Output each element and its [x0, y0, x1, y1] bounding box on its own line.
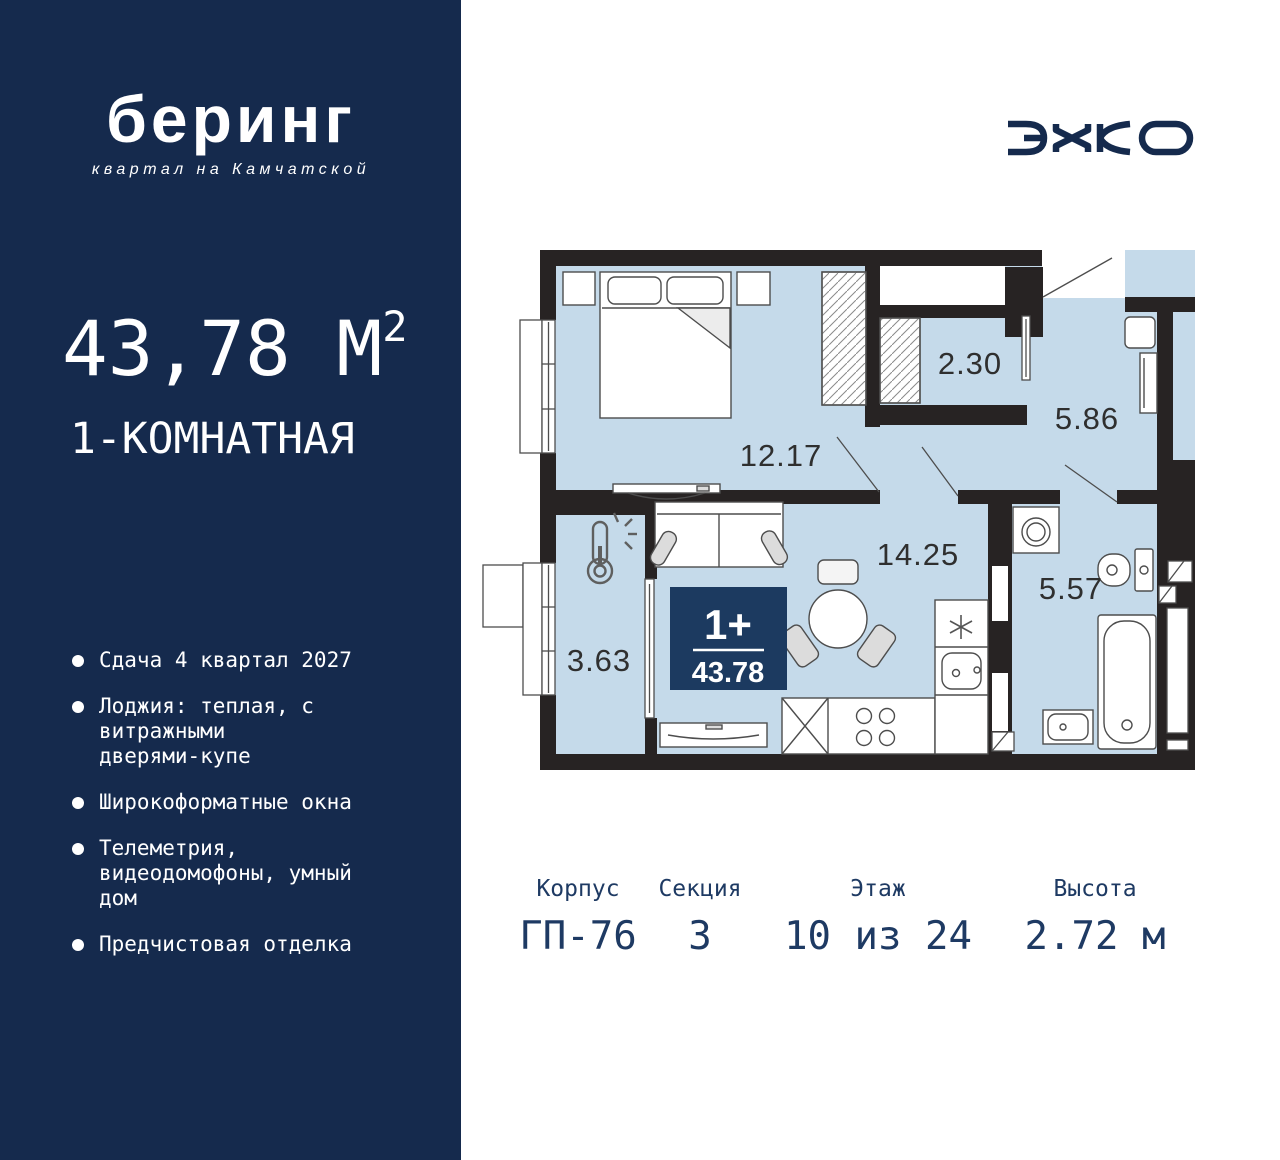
- bedroom-window: [520, 320, 542, 453]
- bullet-dot-icon: [72, 655, 84, 667]
- room-label-bedroom: 12.17: [740, 438, 823, 473]
- area-superscript: 2: [382, 302, 407, 351]
- feature-text: Телеметрия, видеодомофоны, умный дом: [99, 836, 352, 911]
- developer-logo: ЭНКО: [1000, 118, 1200, 158]
- info-label: Высота: [965, 876, 1225, 902]
- list-item: Телеметрия, видеодомофоны, умный дом: [72, 836, 442, 911]
- badge-type: 1+: [704, 601, 752, 648]
- list-item: Сдача 4 квартал 2027: [72, 648, 442, 673]
- room-label-living: 14.25: [877, 537, 960, 572]
- stove-burner: [857, 709, 872, 724]
- area-value: 43,78: [62, 304, 291, 393]
- nightstand: [563, 272, 595, 305]
- nightstand: [737, 272, 770, 305]
- apartment-badge: 1+ 43.78: [670, 587, 787, 690]
- feature-text: Предчистовая отделка: [99, 932, 352, 957]
- room-label-hallway: 5.86: [1055, 401, 1119, 436]
- stove-burner: [880, 709, 895, 724]
- exterior-ledge: [483, 565, 523, 627]
- apartment-area: 43,78 М2: [62, 302, 408, 393]
- stove-burner: [880, 731, 895, 746]
- list-item: Предчистовая отделка: [72, 932, 442, 957]
- floor-plan: 12.17 2.30 5.86 14.25 5.57 3.63 1+ 43.78: [478, 246, 1205, 775]
- area-unit: М: [291, 304, 383, 393]
- room-label-wardrobe: 2.30: [938, 346, 1002, 381]
- wall-niche: [878, 266, 1005, 305]
- dining-table: [809, 590, 867, 648]
- apartment-type: 1-КОМНАТНАЯ: [70, 414, 355, 464]
- info-value: 2.72 м: [965, 914, 1225, 959]
- list-item: Лоджия: теплая, с витражными дверями-куп…: [72, 694, 442, 769]
- bullet-dot-icon: [72, 797, 84, 809]
- bullet-dot-icon: [72, 843, 84, 855]
- feature-text: Сдача 4 квартал 2027: [99, 648, 352, 673]
- info-column-vysota: Высота 2.72 м: [965, 876, 1225, 959]
- stove-burner: [857, 731, 872, 746]
- brand-logo: беринг квартал на Камчатской: [50, 86, 412, 179]
- bullet-dot-icon: [72, 701, 84, 713]
- badge-area: 43.78: [692, 657, 765, 689]
- bullet-dot-icon: [72, 939, 84, 951]
- feature-text: Широкоформатные окна: [99, 790, 352, 815]
- sidebar: беринг квартал на Камчатской 43,78 М2 1-…: [0, 0, 461, 1160]
- list-item: Широкоформатные окна: [72, 790, 442, 815]
- feature-list: Сдача 4 квартал 2027 Лоджия: теплая, с в…: [72, 648, 442, 957]
- feature-text: Лоджия: теплая, с витражными дверями-куп…: [99, 694, 314, 769]
- hall-mirror: [1140, 353, 1157, 413]
- room-label-loggia: 3.63: [567, 643, 631, 678]
- loggia-window: [523, 563, 542, 695]
- brand-title: беринг: [50, 86, 412, 152]
- chair: [818, 560, 858, 584]
- hall-cabinet: [1125, 317, 1155, 348]
- room-label-bathroom: 5.57: [1039, 571, 1103, 606]
- brand-subtitle: квартал на Камчатской: [50, 161, 412, 179]
